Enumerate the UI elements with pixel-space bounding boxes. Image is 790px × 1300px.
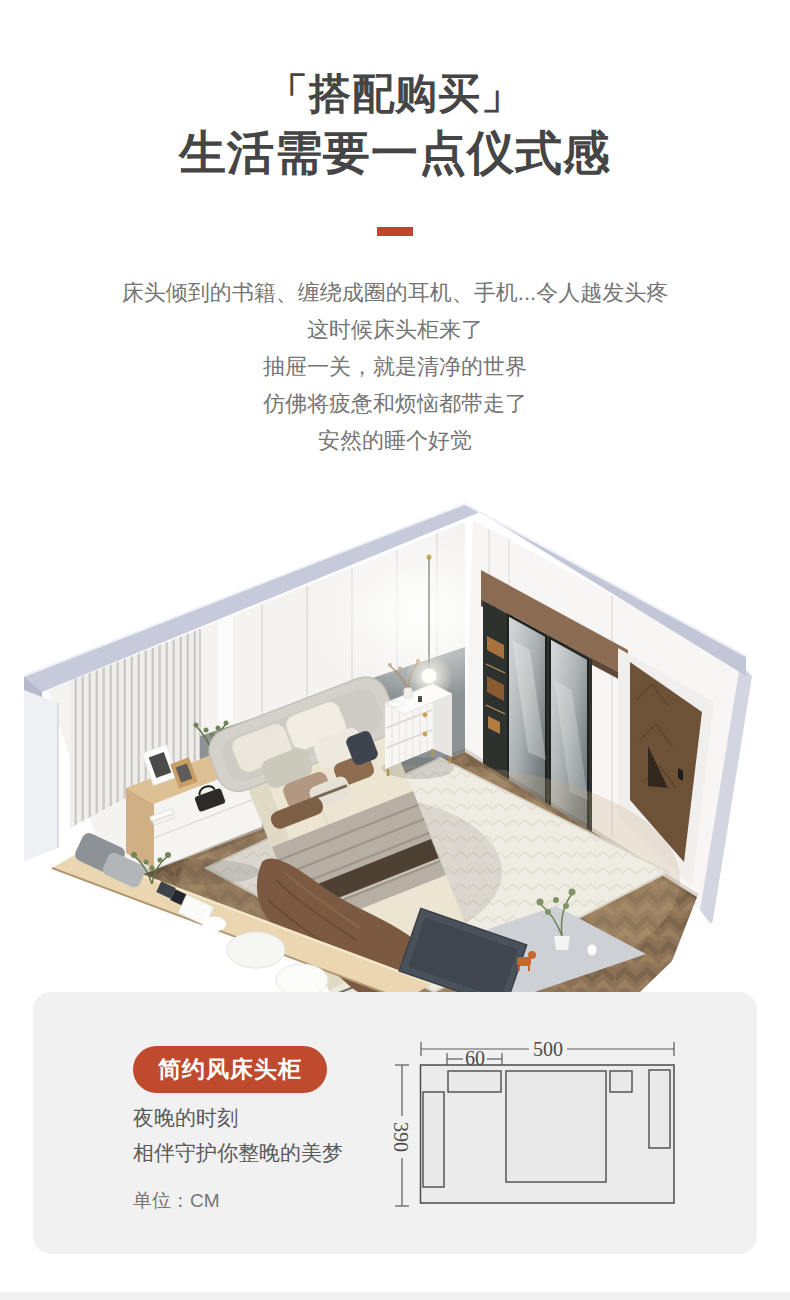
unit-label: 单位：CM bbox=[133, 1188, 220, 1214]
bedroom-render bbox=[0, 495, 790, 992]
plan-cabinet-left bbox=[423, 1092, 444, 1187]
product-badge: 简约风床头柜 bbox=[133, 1046, 327, 1093]
bedroom-render-figure bbox=[0, 495, 790, 992]
page-title-line1: 「搭配购买」 bbox=[0, 66, 790, 122]
page-title-line2: 生活需要一点仪式感 bbox=[0, 122, 790, 185]
intro-paragraph: 床头倾到的书籍、缠绕成圈的耳机、手机...令人越发头疼 这时候床头柜来了 抽屉一… bbox=[0, 274, 790, 459]
drawer-knob bbox=[423, 732, 428, 737]
next-section-edge bbox=[0, 1292, 790, 1300]
product-spec-card: 简约风床头柜 夜晚的时刻 相伴守护你整晚的美梦 单位：CM 500 60 bbox=[33, 992, 757, 1254]
plan-nightstand-small bbox=[610, 1071, 632, 1092]
intro-line: 仿佛将疲惫和烦恼都带走了 bbox=[0, 385, 790, 422]
drawer-knob bbox=[423, 713, 428, 718]
intro-line: 安然的睡个好觉 bbox=[0, 422, 790, 459]
plan-dim-nightstand-value: 60 bbox=[465, 1047, 485, 1069]
intro-line: 床头倾到的书籍、缠绕成圈的耳机、手机...令人越发头疼 bbox=[0, 274, 790, 311]
round-cushion bbox=[276, 964, 328, 992]
card-desc-line: 夜晚的时刻 bbox=[133, 1104, 238, 1132]
plan-wardrobe bbox=[649, 1070, 670, 1148]
card-desc-line: 相伴守护你整晚的美梦 bbox=[133, 1139, 343, 1167]
plan-bed bbox=[506, 1071, 606, 1182]
round-cushion bbox=[227, 932, 285, 968]
section-divider bbox=[377, 227, 413, 236]
left-wall-column bbox=[24, 690, 58, 861]
floor-plan-diagram: 500 60 390 bbox=[385, 1030, 725, 1220]
plan-dim-width-value: 500 bbox=[533, 1038, 563, 1060]
intro-line: 这时候床头柜来了 bbox=[0, 311, 790, 348]
intro-line: 抽屉一关，就是清净的世界 bbox=[0, 348, 790, 385]
plan-nightstand bbox=[448, 1071, 501, 1092]
wall-panel-divider bbox=[218, 616, 233, 731]
plan-dim-depth-value: 390 bbox=[390, 1122, 412, 1152]
